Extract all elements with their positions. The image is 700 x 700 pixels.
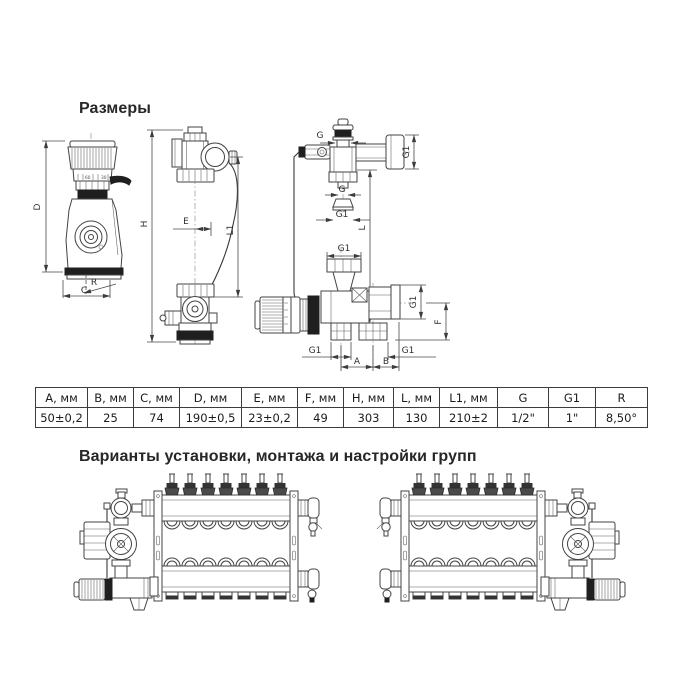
table-value-cell: 1/2" bbox=[498, 408, 549, 428]
table-value-cell: 190±0,5 bbox=[180, 408, 242, 428]
dim-label-g1-union: G1 bbox=[336, 210, 349, 220]
table-header-cell: С, мм bbox=[134, 388, 180, 408]
head-scale-mark-60: 60 bbox=[85, 175, 91, 181]
dim-label-l: L bbox=[358, 225, 368, 230]
table-header-cell: L, мм bbox=[394, 388, 440, 408]
thermostatic-head-small bbox=[74, 579, 112, 600]
dim-label-e: E bbox=[183, 217, 189, 227]
dim-label-b: B bbox=[383, 357, 389, 367]
table-value-cell: 25 bbox=[88, 408, 134, 428]
dim-label-h: H bbox=[140, 221, 150, 228]
dim-label-g1-bottom-left: G1 bbox=[309, 346, 322, 356]
thermostatic-head: 60 30 bbox=[68, 141, 131, 199]
dim-label-l1: L1 bbox=[226, 225, 236, 236]
capillary-tube bbox=[294, 152, 299, 298]
dim-label-a: A bbox=[354, 357, 361, 367]
head-scale-mark-30: 30 bbox=[101, 175, 107, 181]
table-header-cell: G1 bbox=[549, 388, 596, 408]
manifold-variant-left bbox=[74, 474, 322, 610]
dim-label-f: F bbox=[434, 319, 444, 324]
end-fittings bbox=[298, 498, 322, 602]
table-header-cell: G bbox=[498, 388, 549, 408]
table-value-cell: 8,50° bbox=[596, 408, 648, 428]
table-header-cell: Е, мм bbox=[242, 388, 298, 408]
table-value-cell: 1" bbox=[549, 408, 596, 428]
union-nut bbox=[177, 169, 214, 182]
pump-group bbox=[74, 489, 158, 610]
table-header-row: А, мм В, мм С, мм D, мм Е, мм F, мм Н, м… bbox=[36, 388, 648, 408]
table-value-cell: 49 bbox=[298, 408, 344, 428]
side-flange bbox=[172, 139, 182, 167]
table-value-cell: 23±0,2 bbox=[242, 408, 298, 428]
thermostatic-head-horizontal bbox=[255, 296, 319, 334]
technical-drawings-canvas: 60 30 D R C bbox=[0, 0, 700, 700]
dim-label-g-top: G bbox=[317, 131, 324, 141]
drain-valve bbox=[309, 523, 317, 531]
dim-label-d: D bbox=[33, 203, 43, 210]
table-header-cell: В, мм bbox=[88, 388, 134, 408]
head-lever bbox=[110, 176, 131, 185]
table-value-cell: 130 bbox=[394, 408, 440, 428]
dim-label-g-union: G bbox=[339, 185, 346, 195]
dim-label-g1-nut: G1 bbox=[338, 244, 351, 254]
pump-body-side bbox=[65, 199, 123, 279]
table-value-cell: 74 bbox=[134, 408, 180, 428]
mixing-valve-body bbox=[110, 578, 152, 598]
table-value-cell: 210±2 bbox=[440, 408, 498, 428]
table-value-row: 50±0,2 25 74 190±0,5 23±0,2 49 303 130 2… bbox=[36, 408, 648, 428]
dimensions-table: А, мм В, мм С, мм D, мм Е, мм F, мм Н, м… bbox=[35, 387, 648, 428]
manifold-top-bar bbox=[162, 495, 290, 521]
table-header-cell: L1, мм bbox=[440, 388, 498, 408]
dim-label-r: R bbox=[91, 278, 97, 288]
table-header-cell: R bbox=[596, 388, 648, 408]
dim-label-g1-port: G1 bbox=[409, 296, 419, 309]
manifold-bottom-bar bbox=[162, 566, 290, 592]
table-value-cell: 50±0,2 bbox=[36, 408, 88, 428]
manifold-variant-right bbox=[377, 474, 625, 610]
table-header-cell: А, мм bbox=[36, 388, 88, 408]
air-vent bbox=[308, 590, 316, 598]
table-header-cell: F, мм bbox=[298, 388, 344, 408]
table-header-cell: Н, мм bbox=[344, 388, 394, 408]
drawing-valve-assembly-view: G G1 G G1 L G1 bbox=[255, 119, 450, 371]
drawing-side-view: 60 30 D R C bbox=[33, 133, 131, 298]
dim-label-g1-bottom-right: G1 bbox=[402, 346, 415, 356]
table-value-cell: 303 bbox=[344, 408, 394, 428]
drawing-front-view: H E L1 bbox=[140, 127, 243, 344]
table-header-cell: D, мм bbox=[180, 388, 242, 408]
lower-pump-port bbox=[183, 297, 208, 322]
dim-label-g1-flange: G1 bbox=[402, 146, 412, 159]
dim-label-c: C bbox=[81, 286, 87, 296]
